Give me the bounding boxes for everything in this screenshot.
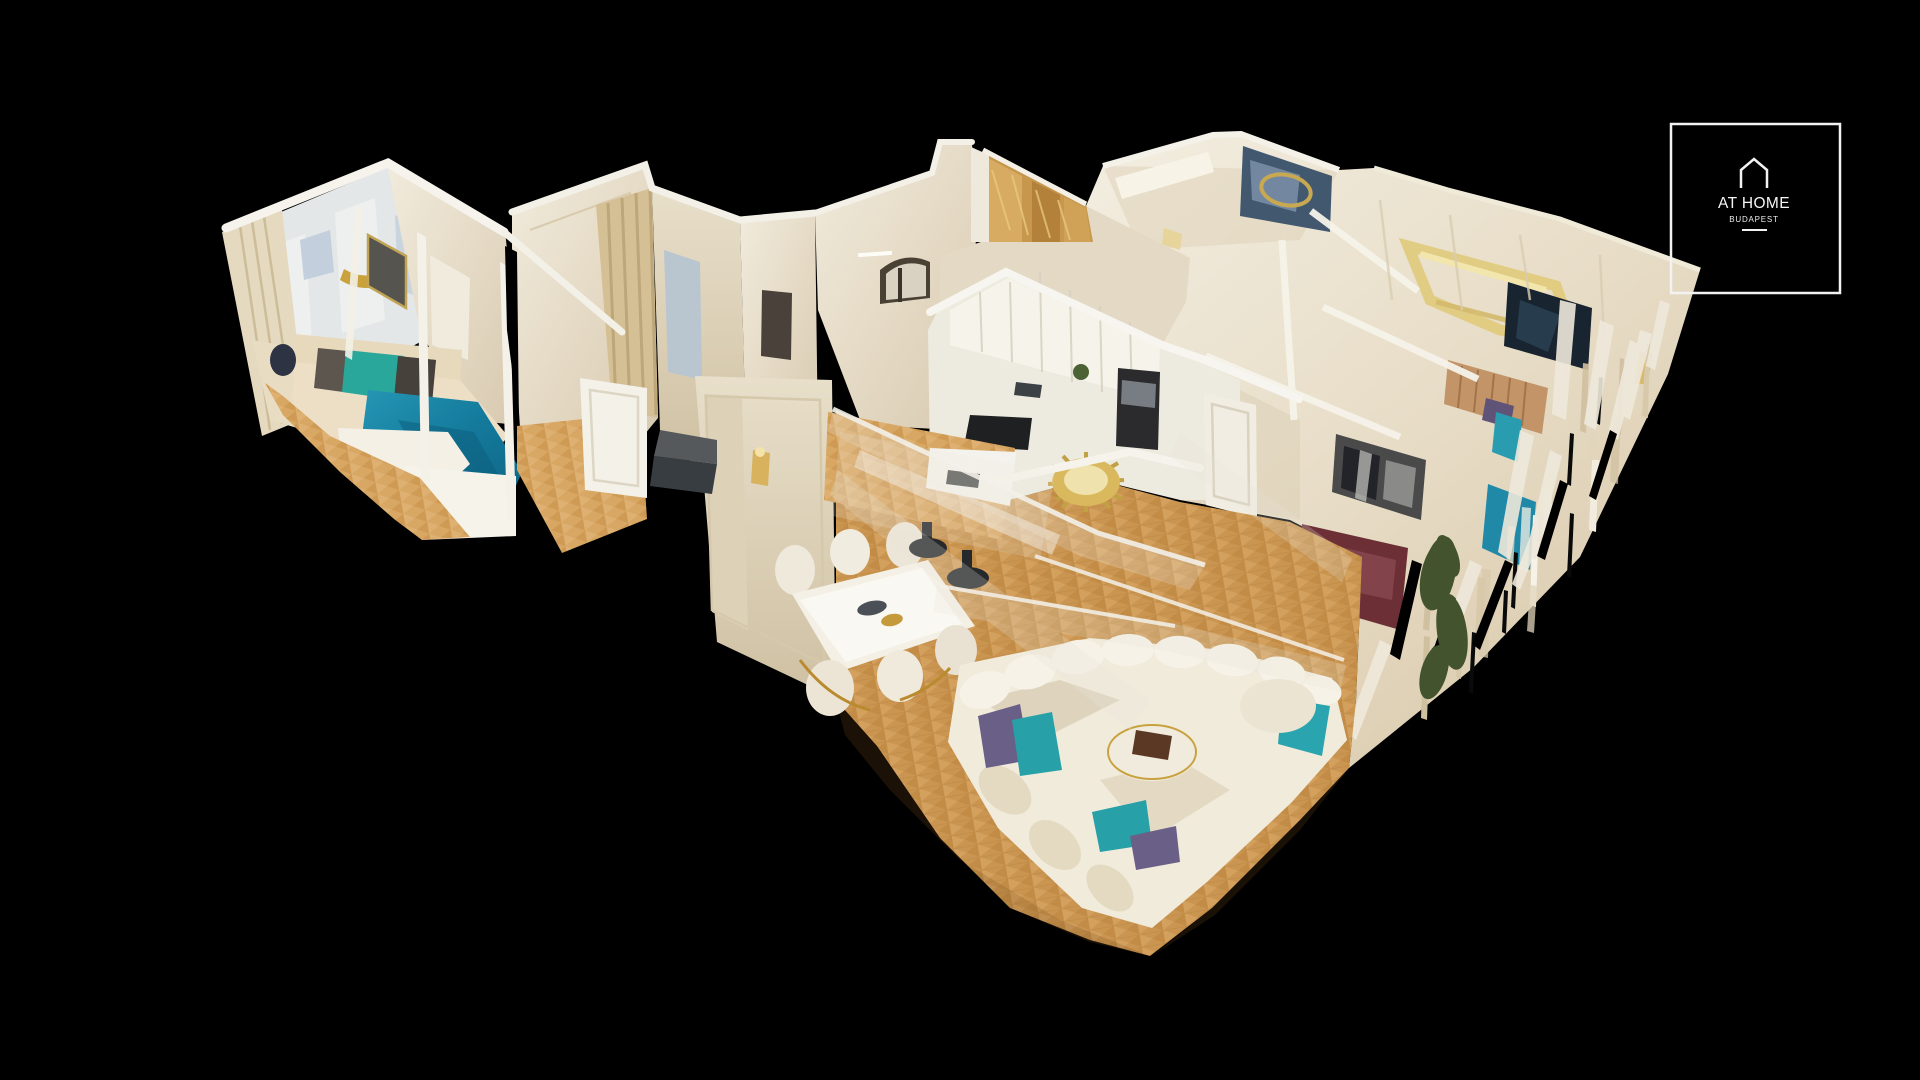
svg-text:BUDAPEST: BUDAPEST <box>1729 215 1779 224</box>
svg-text:AT HOME: AT HOME <box>1718 195 1790 212</box>
